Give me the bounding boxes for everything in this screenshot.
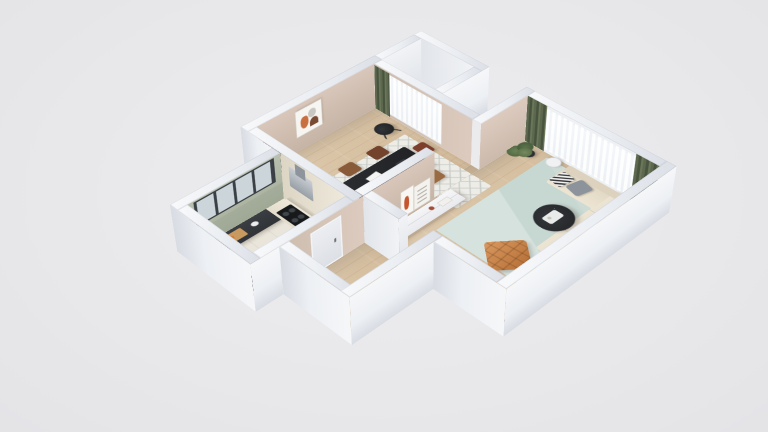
art-lines — [417, 185, 426, 204]
white-dish — [249, 220, 260, 227]
art-orange-shape — [300, 114, 309, 130]
door-handle — [334, 238, 336, 243]
art-figure — [404, 195, 409, 211]
floorplan-scene — [0, 0, 768, 432]
console-vase — [427, 206, 435, 211]
apartment-plan — [146, 70, 685, 426]
table-tray — [541, 209, 564, 224]
console-books — [438, 197, 452, 206]
abstract-art-frame — [295, 99, 322, 137]
